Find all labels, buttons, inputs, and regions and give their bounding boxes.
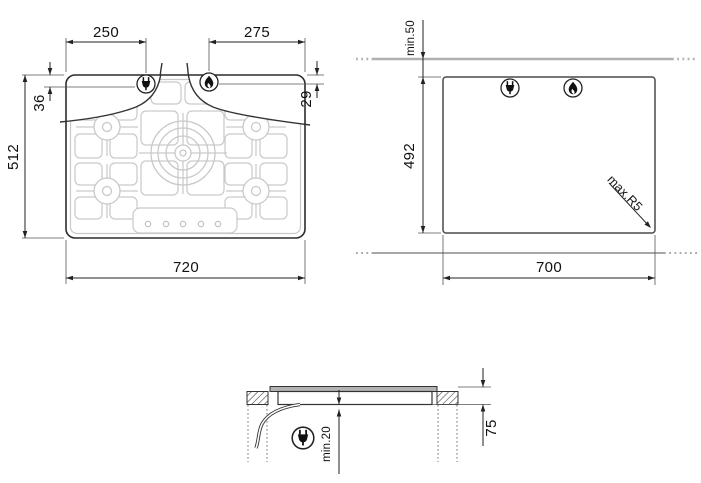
control-panel xyxy=(133,208,237,233)
counter-section-right xyxy=(437,392,458,405)
drawing-svg: 250 275 36 29 512 720 xyxy=(0,0,701,483)
dim-cutout-width: 700 xyxy=(536,259,562,276)
knob xyxy=(215,221,220,226)
dim-min-wall-clearance: min.50 xyxy=(405,20,417,56)
installation-drawing: 250 275 36 29 512 720 xyxy=(0,0,701,483)
electric-plug-icon xyxy=(501,79,519,97)
gas-flame-icon xyxy=(564,79,582,97)
dim-plug-offset: 250 xyxy=(93,24,119,41)
dim-min-clearance-below: min.20 xyxy=(321,426,333,462)
dim-burner-inset: 29 xyxy=(298,90,315,107)
dim-plug-inset: 36 xyxy=(31,94,48,111)
cutout-rectangle xyxy=(443,77,655,233)
cabinet-dashed-lines xyxy=(248,405,457,462)
dim-hob-width: 720 xyxy=(173,259,199,276)
dim-cutout-depth: 492 xyxy=(401,143,418,169)
side-section-view: min.20 75 xyxy=(247,368,500,474)
gas-flame-icon xyxy=(200,73,218,91)
dimension-lines-section xyxy=(339,368,483,474)
dim-burner-offset: 275 xyxy=(244,24,270,41)
knob xyxy=(145,221,150,226)
hob-top-slab xyxy=(270,387,437,392)
knob xyxy=(180,221,185,226)
knob xyxy=(163,221,168,226)
knob xyxy=(198,221,203,226)
hob-top-view: 250 275 36 29 512 720 xyxy=(5,24,324,284)
electric-plug-icon xyxy=(292,427,314,449)
dim-built-in-depth: 75 xyxy=(483,419,500,436)
dim-hob-depth: 512 xyxy=(5,144,22,170)
electric-plug-icon xyxy=(137,75,155,93)
worktop-cutout-view: min.50 492 700 max.R5 xyxy=(356,20,698,285)
counter-section-left xyxy=(247,392,268,405)
hob-body-section xyxy=(278,392,432,405)
